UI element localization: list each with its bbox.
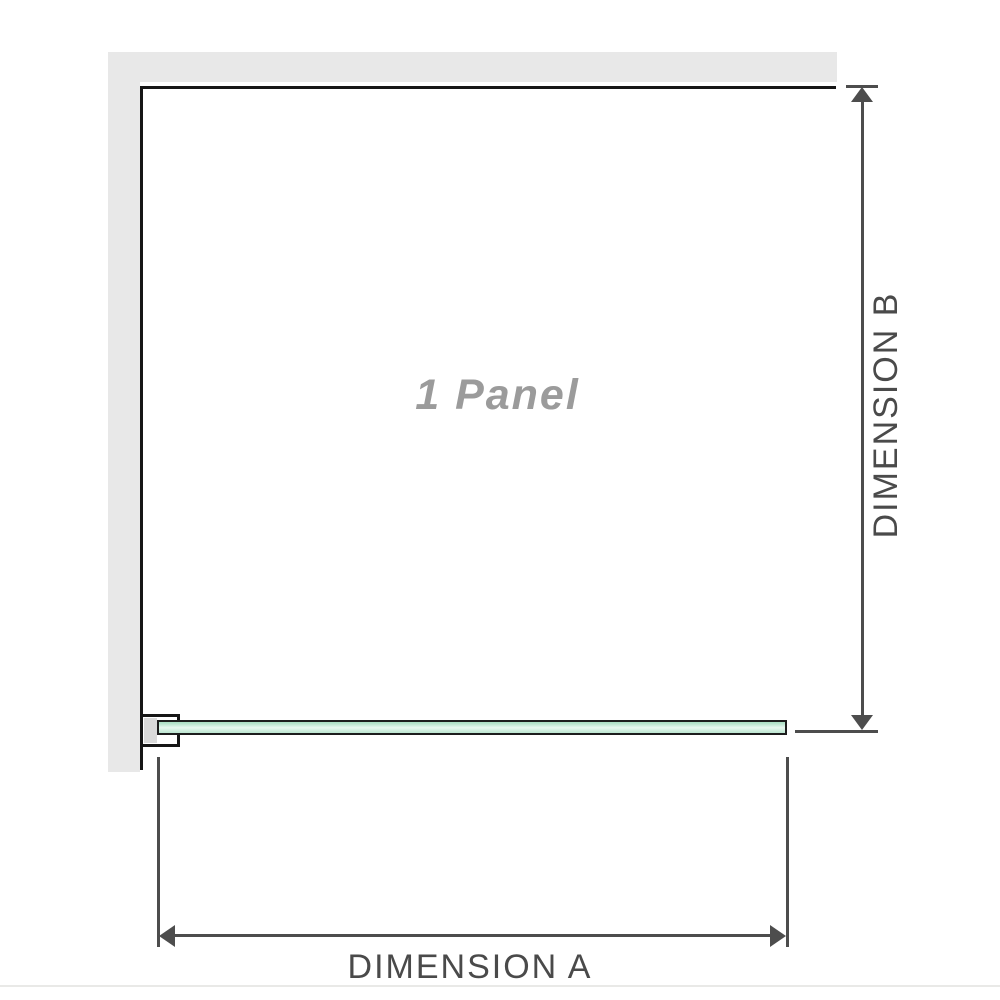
footer-divider	[0, 985, 1000, 987]
dimension-a-extension-right	[786, 757, 789, 947]
wall-bracket-insert	[144, 718, 157, 743]
panel-dimension-diagram: 1 Panel DIMENSION B DIMENSION A	[0, 0, 1000, 1000]
dimension-b-label: DIMENSION B	[869, 265, 903, 565]
arrowhead-up-icon	[851, 87, 873, 102]
panel-outline-left	[140, 86, 143, 770]
dimension-a-label: DIMENSION A	[170, 948, 770, 987]
panel-count-label: 1 Panel	[150, 371, 845, 420]
wall-left-bar	[108, 52, 140, 772]
arrowhead-down-icon	[851, 715, 873, 730]
wall-top-bar	[108, 52, 837, 82]
arrowhead-right-icon	[770, 925, 786, 947]
glass-panel	[157, 720, 787, 735]
panel-outline-top	[140, 86, 836, 89]
dimension-b-line	[861, 99, 864, 719]
dimension-b-bottom-tick	[795, 730, 878, 733]
dimension-a-line	[172, 934, 773, 937]
arrowhead-left-icon	[159, 925, 175, 947]
dimension-a-extension-left	[157, 757, 160, 947]
